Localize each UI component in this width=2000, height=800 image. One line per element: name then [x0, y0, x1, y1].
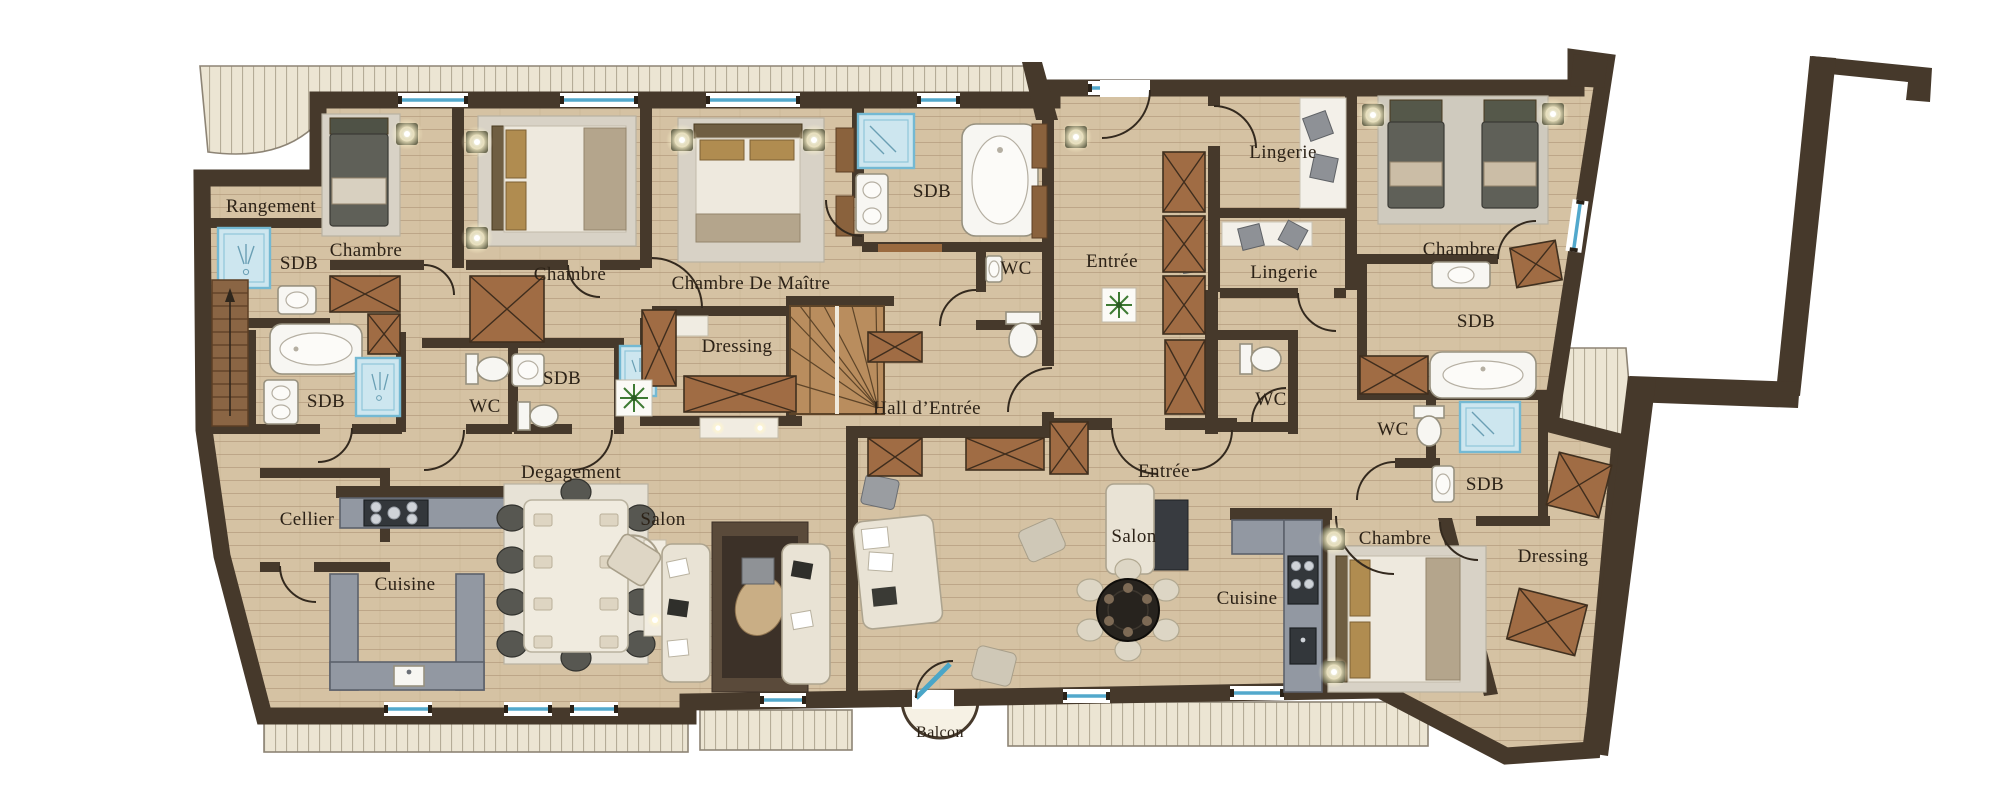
shower-icon [218, 228, 270, 288]
closet-icon [330, 276, 400, 312]
room-label-wc-maitre: WC [1000, 258, 1031, 279]
shower-icon [356, 358, 400, 416]
room-label-sdb-1: SDB [280, 253, 318, 274]
armchair-icon [742, 558, 774, 584]
closet-icon [966, 438, 1044, 470]
toilet-icon [518, 402, 558, 430]
room-label-salon-1: Salon [640, 509, 685, 530]
sink-icon [278, 286, 316, 314]
sofa-icon [853, 514, 944, 630]
light-icon [1357, 99, 1389, 131]
room-label-dressing-2: Dressing [1518, 546, 1589, 567]
light-icon [461, 126, 493, 158]
bed-chambre-2 [478, 116, 636, 246]
room-label-cellier: Cellier [280, 509, 335, 530]
window-icon [560, 93, 638, 107]
toilet-icon [1006, 312, 1040, 357]
closet-icon [368, 314, 400, 354]
deck-bottom-right [1008, 702, 1428, 746]
closet-icon [1165, 340, 1205, 414]
room-label-wc-4: WC [1377, 419, 1408, 440]
beds-chambre-3 [1378, 96, 1548, 224]
closet-icon [1360, 356, 1428, 394]
room-label-sdb-maitre: SDB [913, 181, 951, 202]
window-icon [384, 702, 432, 716]
window-icon [570, 702, 618, 716]
bathtub-left [270, 324, 362, 374]
light-icon [1318, 523, 1350, 555]
outer-neighbour-wall [1582, 56, 1932, 756]
window-icon [917, 93, 960, 107]
room-label-hall-entree: Hall d’Entrée [873, 398, 981, 419]
plant-icon [616, 380, 652, 416]
plant-icon [1102, 288, 1136, 322]
room-label-lingerie-1: Lingerie [1249, 142, 1317, 163]
room-label-chambre-4: Chambre [1359, 528, 1431, 549]
sink-icon [512, 354, 544, 386]
kitchen-sink-icon [394, 666, 424, 686]
floor-plan-page: Rangement SDB Chambre Chambre Chambre De… [0, 0, 2000, 800]
closet-icon [868, 332, 922, 362]
room-label-lingerie-2: Lingerie [1250, 262, 1318, 283]
bed-chambre-4 [1328, 546, 1486, 692]
room-label-salon-2: Salon [1111, 526, 1156, 547]
hall-console [700, 418, 778, 438]
sink-icon [264, 380, 298, 424]
room-label-dressing-1: Dressing [702, 336, 773, 357]
closet-icon [1163, 216, 1205, 272]
closet-icon [1050, 422, 1088, 474]
floor-plan-canvas: Rangement SDB Chambre Chambre Chambre De… [0, 0, 2000, 800]
toilet-icon [1414, 406, 1444, 446]
shower-icon [1460, 402, 1520, 452]
room-label-chambre-1: Chambre [330, 240, 402, 261]
deck-bottom-center [700, 710, 852, 750]
window-icon [1230, 686, 1284, 700]
window-icon [398, 93, 468, 107]
toilet-icon [466, 354, 509, 384]
room-label-wc-2: WC [469, 396, 500, 417]
room-label-balcon: Balcon [916, 724, 964, 741]
toilet-icon [1240, 344, 1281, 374]
window-icon [1063, 689, 1110, 703]
ottoman-icon [860, 474, 899, 510]
sink-icon [856, 174, 888, 232]
closet-icon [1546, 452, 1611, 517]
window-icon [504, 702, 552, 716]
light-icon [1318, 656, 1350, 688]
room-label-sdb-4: SDB [307, 391, 345, 412]
light-icon [666, 124, 698, 156]
sink-icon [1432, 466, 1454, 502]
room-label-entree-1: Entrée [1086, 251, 1138, 272]
closet-icon [470, 276, 544, 342]
light-icon [1060, 121, 1092, 153]
shower-icon [858, 114, 914, 168]
room-label-sdb-3: SDB [1457, 311, 1495, 332]
room-label-cuisine-2: Cuisine [1217, 588, 1278, 609]
sink-icon [1432, 262, 1490, 288]
window-icon [760, 693, 806, 707]
light-icon [461, 222, 493, 254]
room-label-chambre-2: Chambre [534, 264, 606, 285]
kitchen-sink-icon [1290, 628, 1316, 664]
room-label-rangement: Rangement [226, 196, 316, 217]
room-label-chambre-3: Chambre [1423, 239, 1495, 260]
bathtub-master [962, 124, 1038, 236]
room-label-chambre-de-maitre: Chambre De Maître [672, 273, 831, 294]
light-icon [391, 118, 423, 150]
room-label-sdb-6: SDB [1466, 474, 1504, 495]
closet-icon [642, 310, 676, 386]
room-label-entree-2: Entrée [1138, 461, 1190, 482]
closet-icon [684, 376, 796, 412]
closet-icon [1163, 276, 1205, 334]
bathtub-right [1430, 352, 1536, 398]
closet-icon [1163, 152, 1205, 212]
room-label-degagement: Degagement [521, 462, 621, 483]
window-icon [706, 93, 800, 107]
room-label-sdb-5: SDB [543, 368, 581, 389]
corner-stub-wall [1570, 54, 1608, 88]
light-icon [1537, 98, 1569, 130]
room-label-cuisine-1: Cuisine [375, 574, 436, 595]
closet-icon [868, 438, 922, 476]
room-label-wc-3: WC [1255, 389, 1286, 410]
bed-chambre-1 [322, 114, 400, 236]
light-icon [798, 124, 830, 156]
closet-icon [1510, 240, 1562, 287]
stairs-left [212, 280, 248, 426]
